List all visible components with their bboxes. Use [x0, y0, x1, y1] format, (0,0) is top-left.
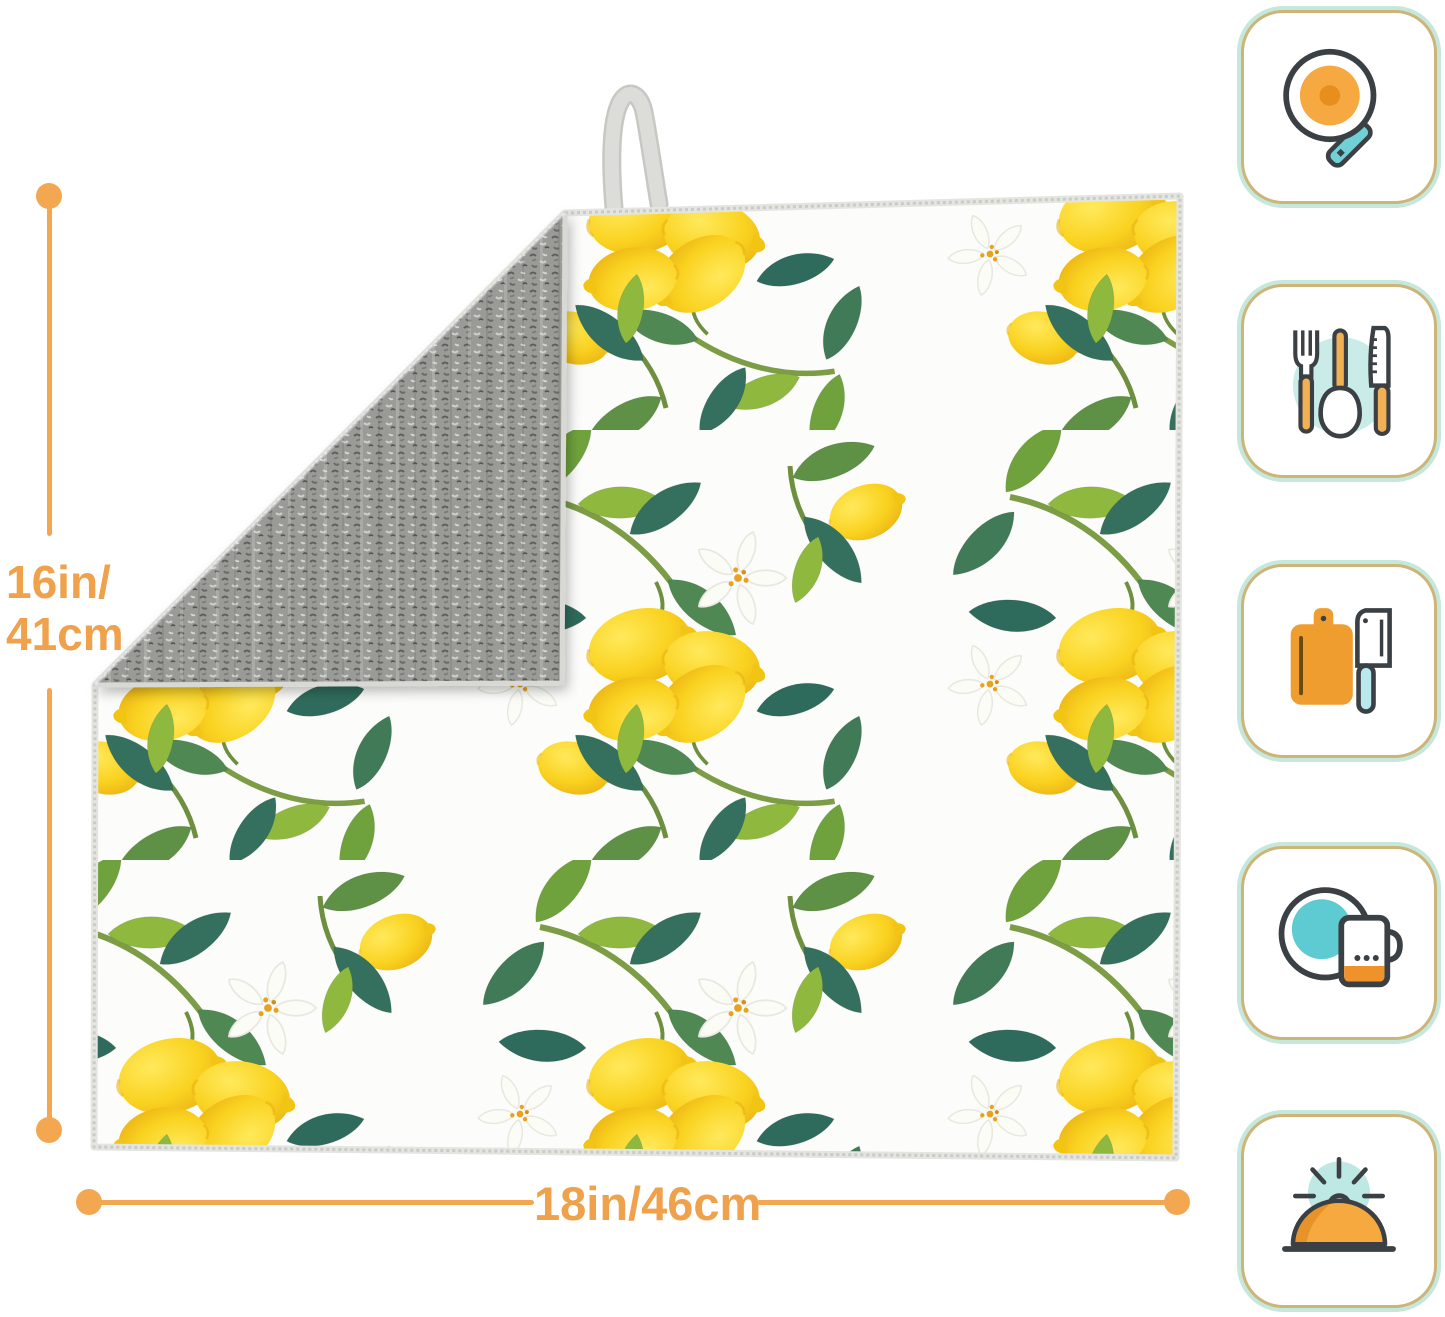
height-label-line1: 16in/ [6, 556, 124, 608]
dimension-endpoint-dot [36, 1117, 62, 1143]
mug-icon [1341, 918, 1400, 985]
folded-corner-back [95, 213, 565, 685]
drying-mat-photo [0, 0, 1445, 1317]
plate-mug-icon [1241, 846, 1437, 1040]
height-label-line2: 41cm [6, 608, 124, 660]
product-image: 16in/ 41cm 18in/46cm [0, 0, 1445, 1317]
hanging-loop [612, 94, 659, 208]
frying-pan-icon [1241, 10, 1437, 204]
height-dimension-label: 16in/ 41cm [6, 556, 124, 660]
cleaver-icon [1357, 610, 1389, 711]
fork-icon [1295, 330, 1317, 431]
dimension-endpoint-dot [1164, 1189, 1190, 1215]
dimension-line [89, 1200, 534, 1205]
cutting-board-icon [1291, 608, 1353, 705]
dimension-line [47, 688, 52, 1130]
dimension-line [757, 1200, 1177, 1205]
cutlery-icon [1241, 284, 1437, 478]
dimension-line [47, 196, 52, 536]
cutting-board-cleaver-icon [1241, 564, 1437, 758]
cloche-icon [1241, 1114, 1437, 1308]
width-dimension-label: 18in/46cm [534, 1176, 758, 1231]
